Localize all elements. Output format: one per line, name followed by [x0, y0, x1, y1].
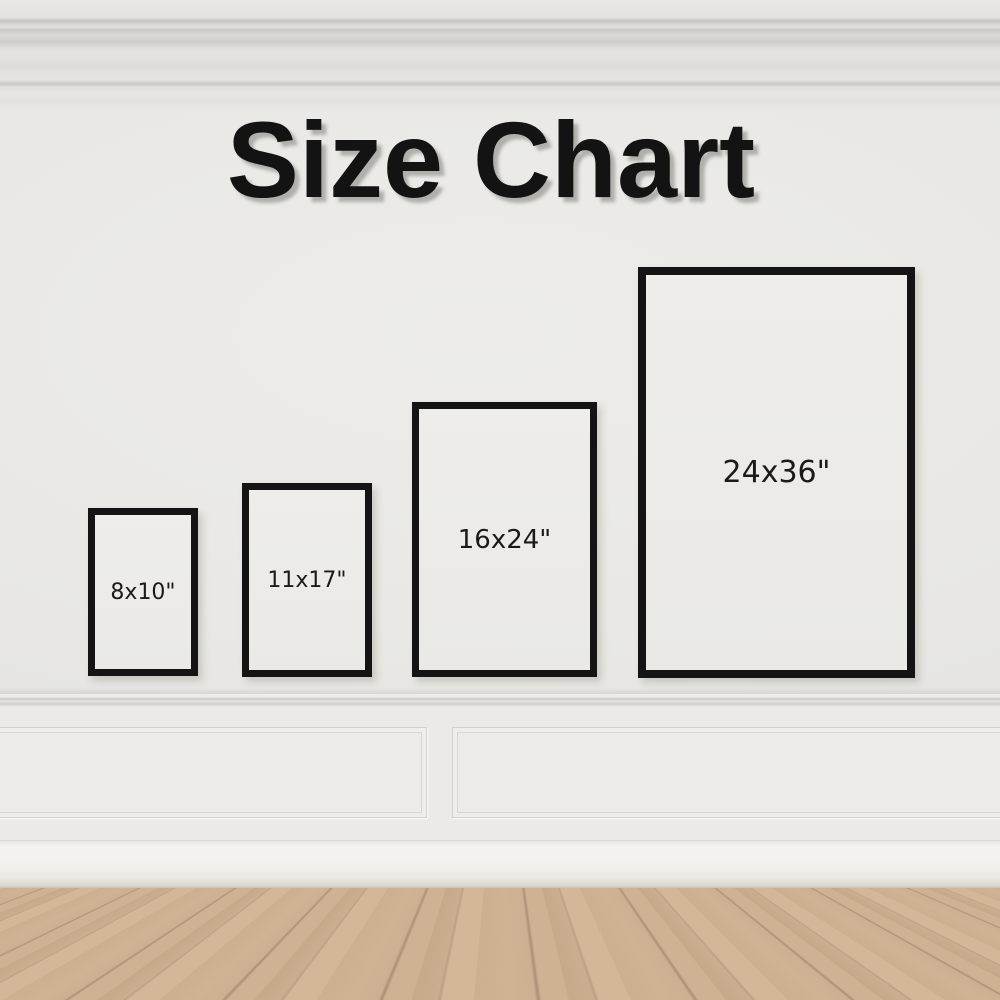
baseboard — [0, 840, 1000, 888]
wainscot-panel-left — [0, 727, 427, 818]
frame-16x24: 16x24" — [412, 402, 597, 677]
frame-size-label: 8x10" — [110, 580, 175, 605]
wainscot-panel-right — [452, 727, 1000, 818]
floor-lighting-overlay — [0, 888, 1000, 1000]
wood-floor — [0, 888, 1000, 1000]
frame-24x36: 24x36" — [638, 267, 915, 678]
crown-molding — [0, 0, 1000, 112]
chair-rail — [0, 694, 1000, 708]
frame-size-label: 16x24" — [458, 525, 552, 555]
frame-11x17: 11x17" — [242, 483, 372, 677]
frame-size-label: 24x36" — [723, 455, 831, 490]
wainscoting — [0, 694, 1000, 840]
size-chart-scene: Size Chart 8x10" 11x17" 16x24" 24x36" — [0, 0, 1000, 1000]
frame-size-label: 11x17" — [267, 568, 346, 593]
frame-8x10: 8x10" — [88, 508, 198, 676]
page-title: Size Chart — [0, 106, 982, 214]
